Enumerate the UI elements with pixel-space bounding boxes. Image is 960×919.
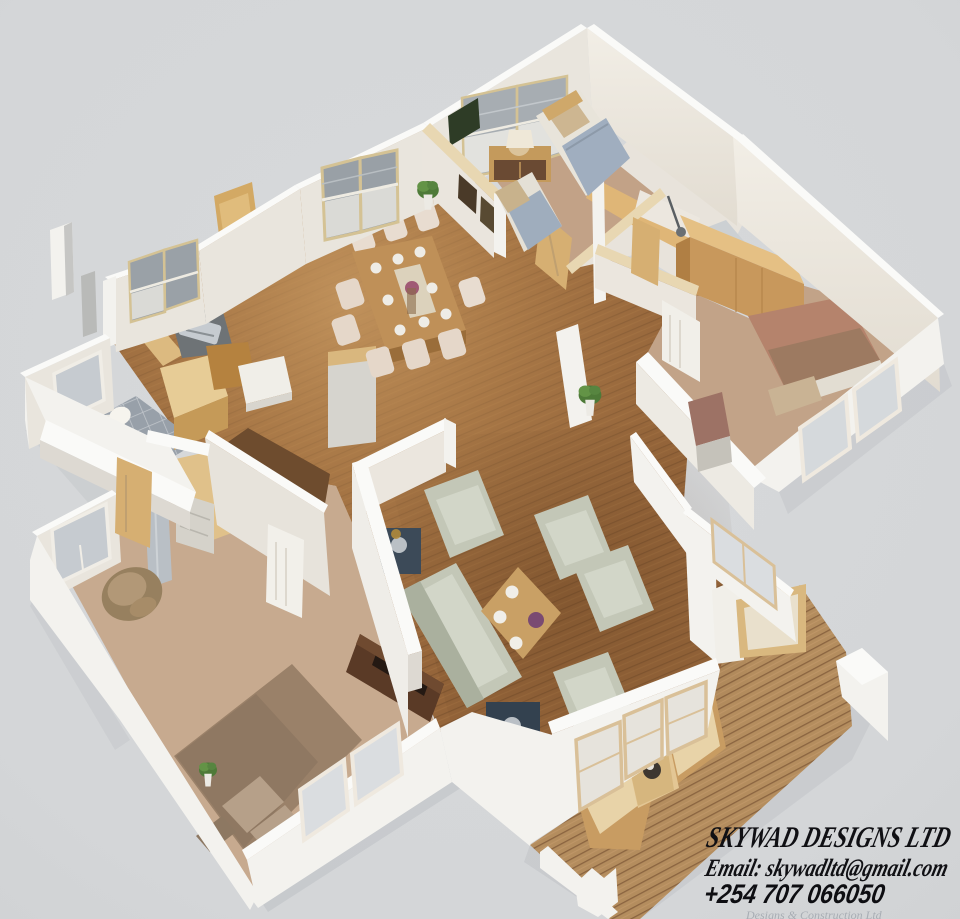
svg-text:+254 707 066050: +254 707 066050 [702,878,887,909]
svg-text:SKYWAD DESIGNS LTD: SKYWAD DESIGNS LTD [703,820,954,853]
svg-text:Designs & Construction Ltd: Designs & Construction Ltd [745,908,883,919]
